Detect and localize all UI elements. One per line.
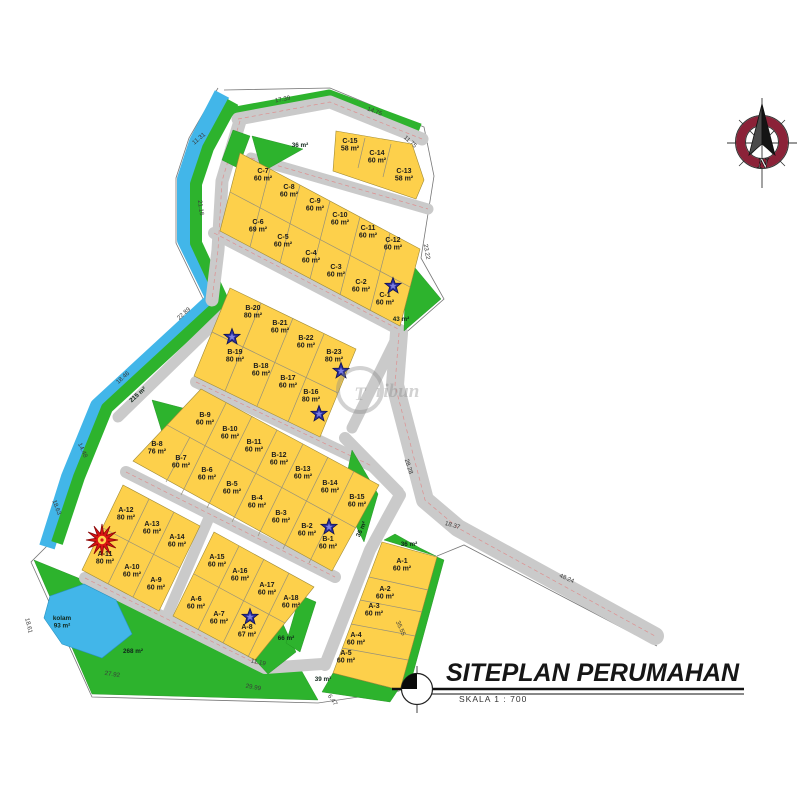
drawing-title: SITEPLAN PERUMAHAN bbox=[446, 659, 740, 687]
lot-C-15: C-1558 m² bbox=[341, 138, 360, 153]
lot-B-14: B-1460 m² bbox=[321, 480, 340, 495]
drawing-scale: SKALA 1 : 700 bbox=[459, 694, 527, 704]
lot-A-17: A-1760 m² bbox=[258, 582, 277, 597]
green-area-label: 43 m² bbox=[393, 316, 409, 323]
lot-A-10: A-1060 m² bbox=[123, 564, 142, 579]
lot-A-18: A-1860 m² bbox=[282, 595, 301, 610]
title-block: SITEPLAN PERUMAHAN SKALA 1 : 700 bbox=[392, 659, 744, 713]
dimension-label: 23.22 bbox=[422, 244, 432, 261]
compass-north-label: N bbox=[757, 156, 770, 172]
lot-B-19: B-1980 m² bbox=[226, 349, 245, 364]
lot-B-11: B-1160 m² bbox=[245, 439, 264, 454]
green-area-label: 66 m² bbox=[278, 635, 294, 642]
lot-B-15: B-1560 m² bbox=[348, 494, 367, 509]
lot-A-15: A-1560 m² bbox=[208, 554, 227, 569]
lot-C-14: C-1460 m² bbox=[368, 150, 387, 165]
green-area-label: 39 m² bbox=[315, 676, 331, 683]
lot-C-12: C-1260 m² bbox=[384, 237, 403, 252]
lot-B-21: B-2160 m² bbox=[271, 320, 290, 335]
watermark-initial: T bbox=[354, 384, 367, 405]
lot-A-11: A-1180 m² bbox=[96, 551, 115, 566]
watermark-text: ribun bbox=[376, 381, 419, 402]
lot-B-18: B-1860 m² bbox=[252, 363, 271, 378]
lot-B-20: B-2080 m² bbox=[244, 305, 263, 320]
lot-B-22: B-2260 m² bbox=[297, 335, 316, 350]
green-area-label: 36 m² bbox=[292, 142, 308, 149]
lot-B-23: B-2380 m² bbox=[325, 349, 344, 364]
dimension-label: 6.47 bbox=[326, 693, 339, 707]
lot-C-11: C-1160 m² bbox=[359, 225, 378, 240]
green-area-label: kolam93 m² bbox=[53, 615, 72, 630]
lot-A-13: A-1360 m² bbox=[143, 521, 162, 536]
lot-B-12: B-1260 m² bbox=[270, 452, 289, 467]
lot-A-14: A-1460 m² bbox=[168, 534, 187, 549]
lot-A-12: A-1280 m² bbox=[117, 507, 136, 522]
green-area-label: 268 m² bbox=[123, 648, 143, 655]
lot-B-13: B-1360 m² bbox=[294, 466, 313, 481]
green-area-label: 36 m² bbox=[401, 541, 417, 548]
siteplan-canvas: C-1558 m²C-1460 m²C-1358 m²C-760 m²C-860… bbox=[0, 0, 800, 800]
lot-B-16: B-1680 m² bbox=[302, 389, 321, 404]
lot-C-10: C-1060 m² bbox=[331, 212, 350, 227]
lot-B-10: B-1060 m² bbox=[221, 426, 240, 441]
lot-C-13: C-1358 m² bbox=[395, 168, 414, 183]
dimension-label: 18.61 bbox=[23, 617, 34, 634]
compass-rose: N bbox=[727, 98, 797, 188]
lot-A-16: A-1660 m² bbox=[231, 568, 250, 583]
lot-B-17: B-1760 m² bbox=[279, 375, 298, 390]
